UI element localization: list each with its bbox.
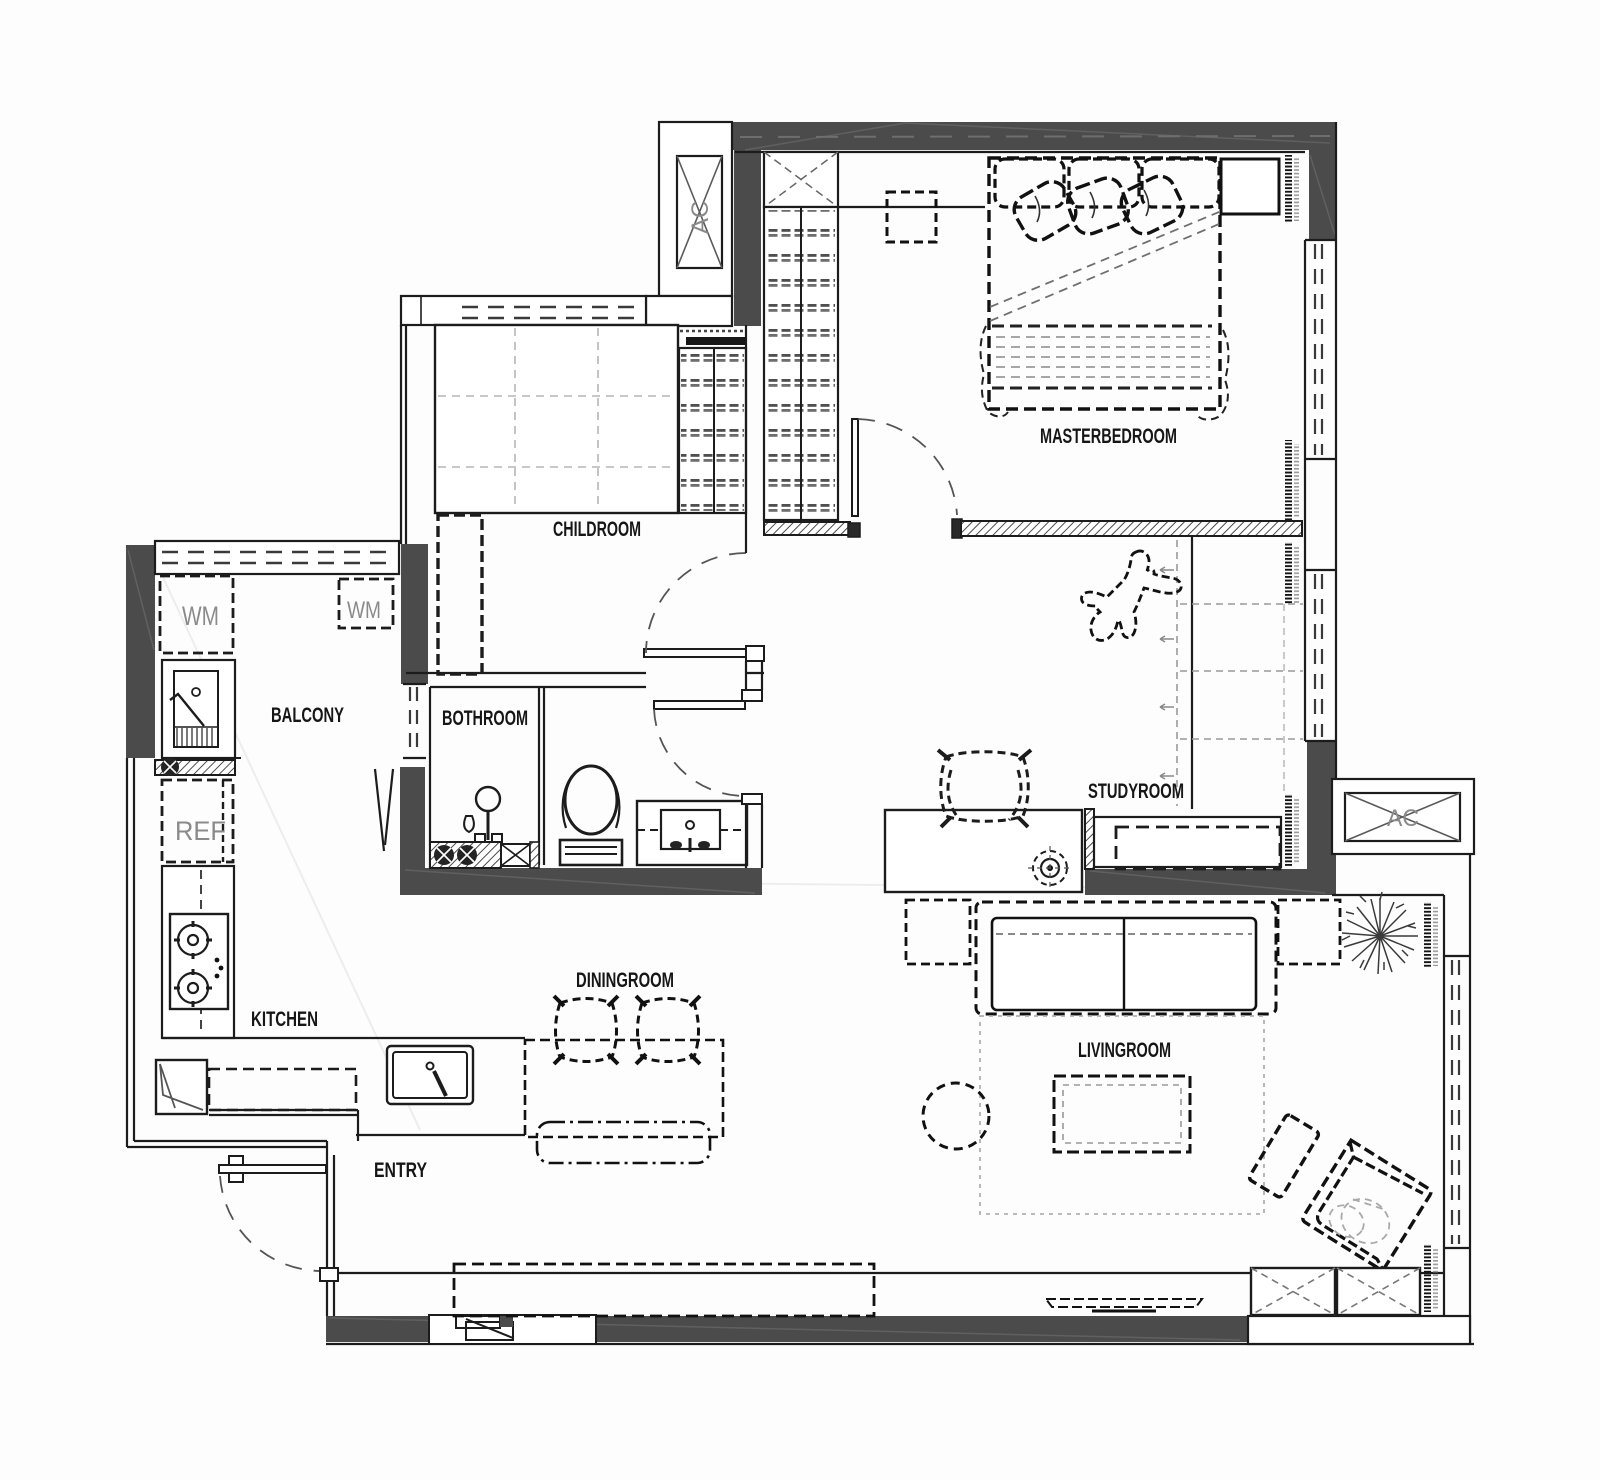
svg-text:REF: REF: [175, 816, 226, 846]
svg-text:CHILDROOM: CHILDROOM: [553, 517, 641, 541]
svg-text:KITCHEN: KITCHEN: [251, 1007, 318, 1031]
svg-text:MASTERBEDROOM: MASTERBEDROOM: [1040, 424, 1177, 448]
svg-text:LIVINGROOM: LIVINGROOM: [1078, 1038, 1171, 1062]
svg-text:ENTRY: ENTRY: [374, 1158, 427, 1182]
svg-text:BALCONY: BALCONY: [271, 703, 344, 727]
svg-text:WM: WM: [347, 597, 381, 624]
svg-text:STUDYROOM: STUDYROOM: [1088, 779, 1184, 803]
svg-text:AC: AC: [687, 201, 714, 234]
svg-text:DININGROOM: DININGROOM: [576, 968, 674, 992]
svg-text:AC: AC: [1387, 805, 1419, 832]
svg-text:WM: WM: [182, 601, 219, 631]
svg-text:BOTHROOM: BOTHROOM: [442, 706, 528, 730]
